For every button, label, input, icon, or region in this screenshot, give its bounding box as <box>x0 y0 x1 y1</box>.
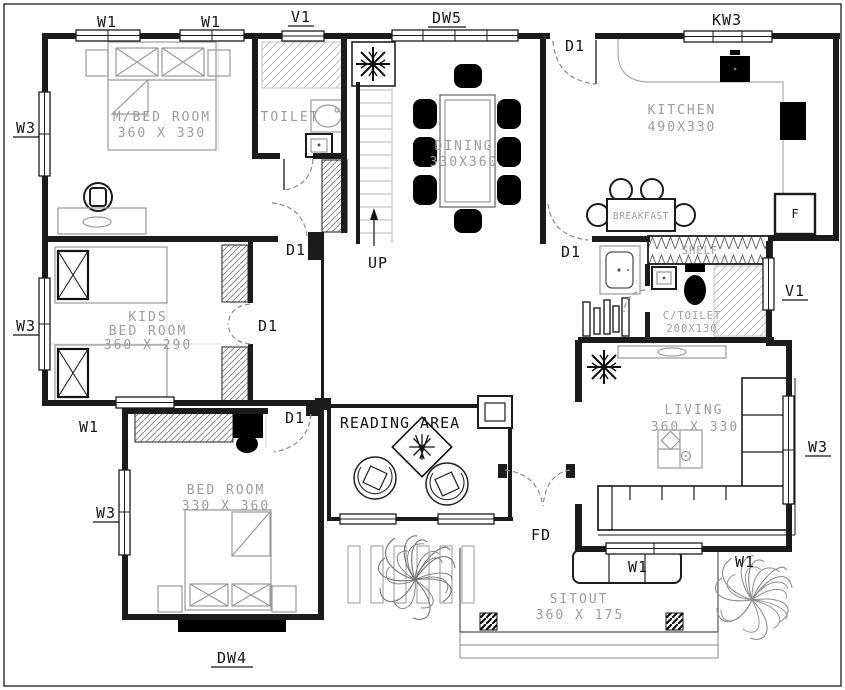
label-shelf: SHELF <box>682 245 719 257</box>
window-w3-bedroom <box>119 470 130 555</box>
label-master-bedroom: M/BED ROOM <box>113 110 211 125</box>
window-w1-top-2 <box>180 30 244 41</box>
label-kw3: KW3 <box>712 11 742 29</box>
nightstand <box>86 50 108 76</box>
living-furniture <box>598 346 795 535</box>
desk <box>58 208 146 234</box>
window-w1-kids <box>116 397 174 408</box>
bedroom-wardrobe <box>135 412 233 442</box>
fridge-label: F <box>791 207 798 221</box>
pillow <box>162 48 204 76</box>
bed <box>158 510 296 612</box>
window-w1-living <box>606 543 702 554</box>
label-w1-sitout: W1 <box>628 558 648 576</box>
breakfast-counter: BREAKFAST <box>587 179 695 231</box>
living-plant <box>587 350 621 384</box>
label-kitchen: KITCHEN <box>648 103 717 118</box>
hall-railing <box>321 260 324 400</box>
window-w3-living <box>783 396 794 504</box>
label-dw4: DW4 <box>217 649 247 667</box>
nightstand <box>158 586 182 612</box>
label-kitchen-size: 490X330 <box>648 120 717 135</box>
dressing-table <box>233 412 263 453</box>
door-d1-passage <box>548 204 588 240</box>
l-sofa <box>598 378 795 535</box>
shower-floor-hatch <box>262 42 342 88</box>
label-dw5: DW5 <box>432 9 462 27</box>
label-d1-bedroom: D1 <box>285 409 305 427</box>
fridge: F <box>775 194 815 234</box>
pillow <box>58 349 88 397</box>
label-master-bedroom-size: 360 X 330 <box>118 126 206 141</box>
coffee-table <box>658 430 702 468</box>
nightstand <box>272 586 296 612</box>
toilet-fixtures <box>306 100 346 157</box>
door-d1-kids <box>228 304 250 344</box>
label-living: LIVING <box>665 403 724 418</box>
ctoilet-fixtures <box>652 264 706 305</box>
ventilator-v1-right <box>763 258 774 310</box>
label-w3-right: W3 <box>808 438 828 456</box>
screen-bars <box>583 298 629 336</box>
window-w1-top-1 <box>76 30 140 41</box>
window-reading-2 <box>438 514 494 524</box>
label-bedroom: BED ROOM <box>187 483 266 498</box>
lounge-chair <box>426 463 468 505</box>
reading-corner-planter <box>478 396 512 428</box>
lounge-chair <box>354 457 396 499</box>
label-w1-kids: W1 <box>79 418 99 436</box>
label-bedroom-size: 330 X 360 <box>182 499 270 514</box>
label-w3-left-1: W3 <box>16 119 36 137</box>
label-w1-living: W1 <box>735 553 755 571</box>
hatch-mark <box>666 613 683 630</box>
label-ctoilet-size: 200X130 <box>666 323 717 335</box>
label-w3-bedroom: W3 <box>96 504 116 522</box>
label-d1-kids: D1 <box>258 317 278 335</box>
staircase <box>358 88 392 246</box>
label-d1-master: D1 <box>286 241 306 259</box>
label-dining: DINING <box>435 139 494 154</box>
label-fd: FD <box>531 526 551 544</box>
ctoilet-floor-hatch <box>714 266 766 336</box>
nightstand <box>208 50 230 76</box>
shelf-unit: SHELF <box>648 236 772 264</box>
stove <box>780 102 806 140</box>
label-kids-size: 360 X 290 <box>104 338 192 353</box>
label-w1-top-1: W1 <box>97 13 117 31</box>
label-reading-area: READING AREA <box>340 414 460 432</box>
label-sitout-size: 360 X 175 <box>536 608 624 623</box>
kids-wardrobes <box>222 245 248 403</box>
label-ctoilet: C/TOILET <box>663 310 722 322</box>
window-reading-1 <box>340 514 396 524</box>
label-kids-1: KIDS <box>128 310 167 325</box>
pillow <box>116 48 158 76</box>
planter-top <box>352 42 395 86</box>
label-kids-2: BED ROOM <box>109 324 188 339</box>
passage-washbasin <box>600 246 640 294</box>
door-fd-double <box>505 470 570 506</box>
floor-plan-canvas: F BREAKFAST SHELF <box>0 0 845 690</box>
label-d1-passage: D1 <box>561 243 581 261</box>
sitout-steps <box>460 632 718 658</box>
label-d1-kitchen: D1 <box>565 37 585 55</box>
label-w1-top-2: W1 <box>201 13 221 31</box>
label-dining-size: 330X360 <box>430 155 499 170</box>
window-w3-left-lower <box>39 278 50 370</box>
door-d1-master <box>272 203 307 236</box>
wc <box>684 264 706 305</box>
ventilator-v1-top <box>282 31 324 41</box>
bedroom-step <box>178 620 286 632</box>
label-breakfast: BREAKFAST <box>613 211 669 222</box>
label-up: UP <box>368 254 388 272</box>
master-desk-chair <box>58 183 146 234</box>
label-v1-top: V1 <box>291 8 311 26</box>
kitchen-sink <box>720 50 750 82</box>
door-toilet <box>284 159 313 190</box>
hatch-mark <box>480 613 497 630</box>
window-w3-left-upper <box>39 92 50 176</box>
window-kw3 <box>684 31 772 42</box>
label-toilet: TOILET <box>261 110 320 125</box>
label-w3-left-2: W3 <box>16 317 36 335</box>
blanket-fold <box>112 80 148 114</box>
window-dw5 <box>392 30 518 41</box>
pillow <box>58 251 88 299</box>
label-v1-right: V1 <box>785 282 805 300</box>
label-sitout: SITOUT <box>550 592 609 607</box>
label-living-size: 360 X 330 <box>651 420 739 435</box>
bedroom-furniture <box>135 412 296 632</box>
floor-plan-drawing: F BREAKFAST SHELF <box>0 0 845 690</box>
